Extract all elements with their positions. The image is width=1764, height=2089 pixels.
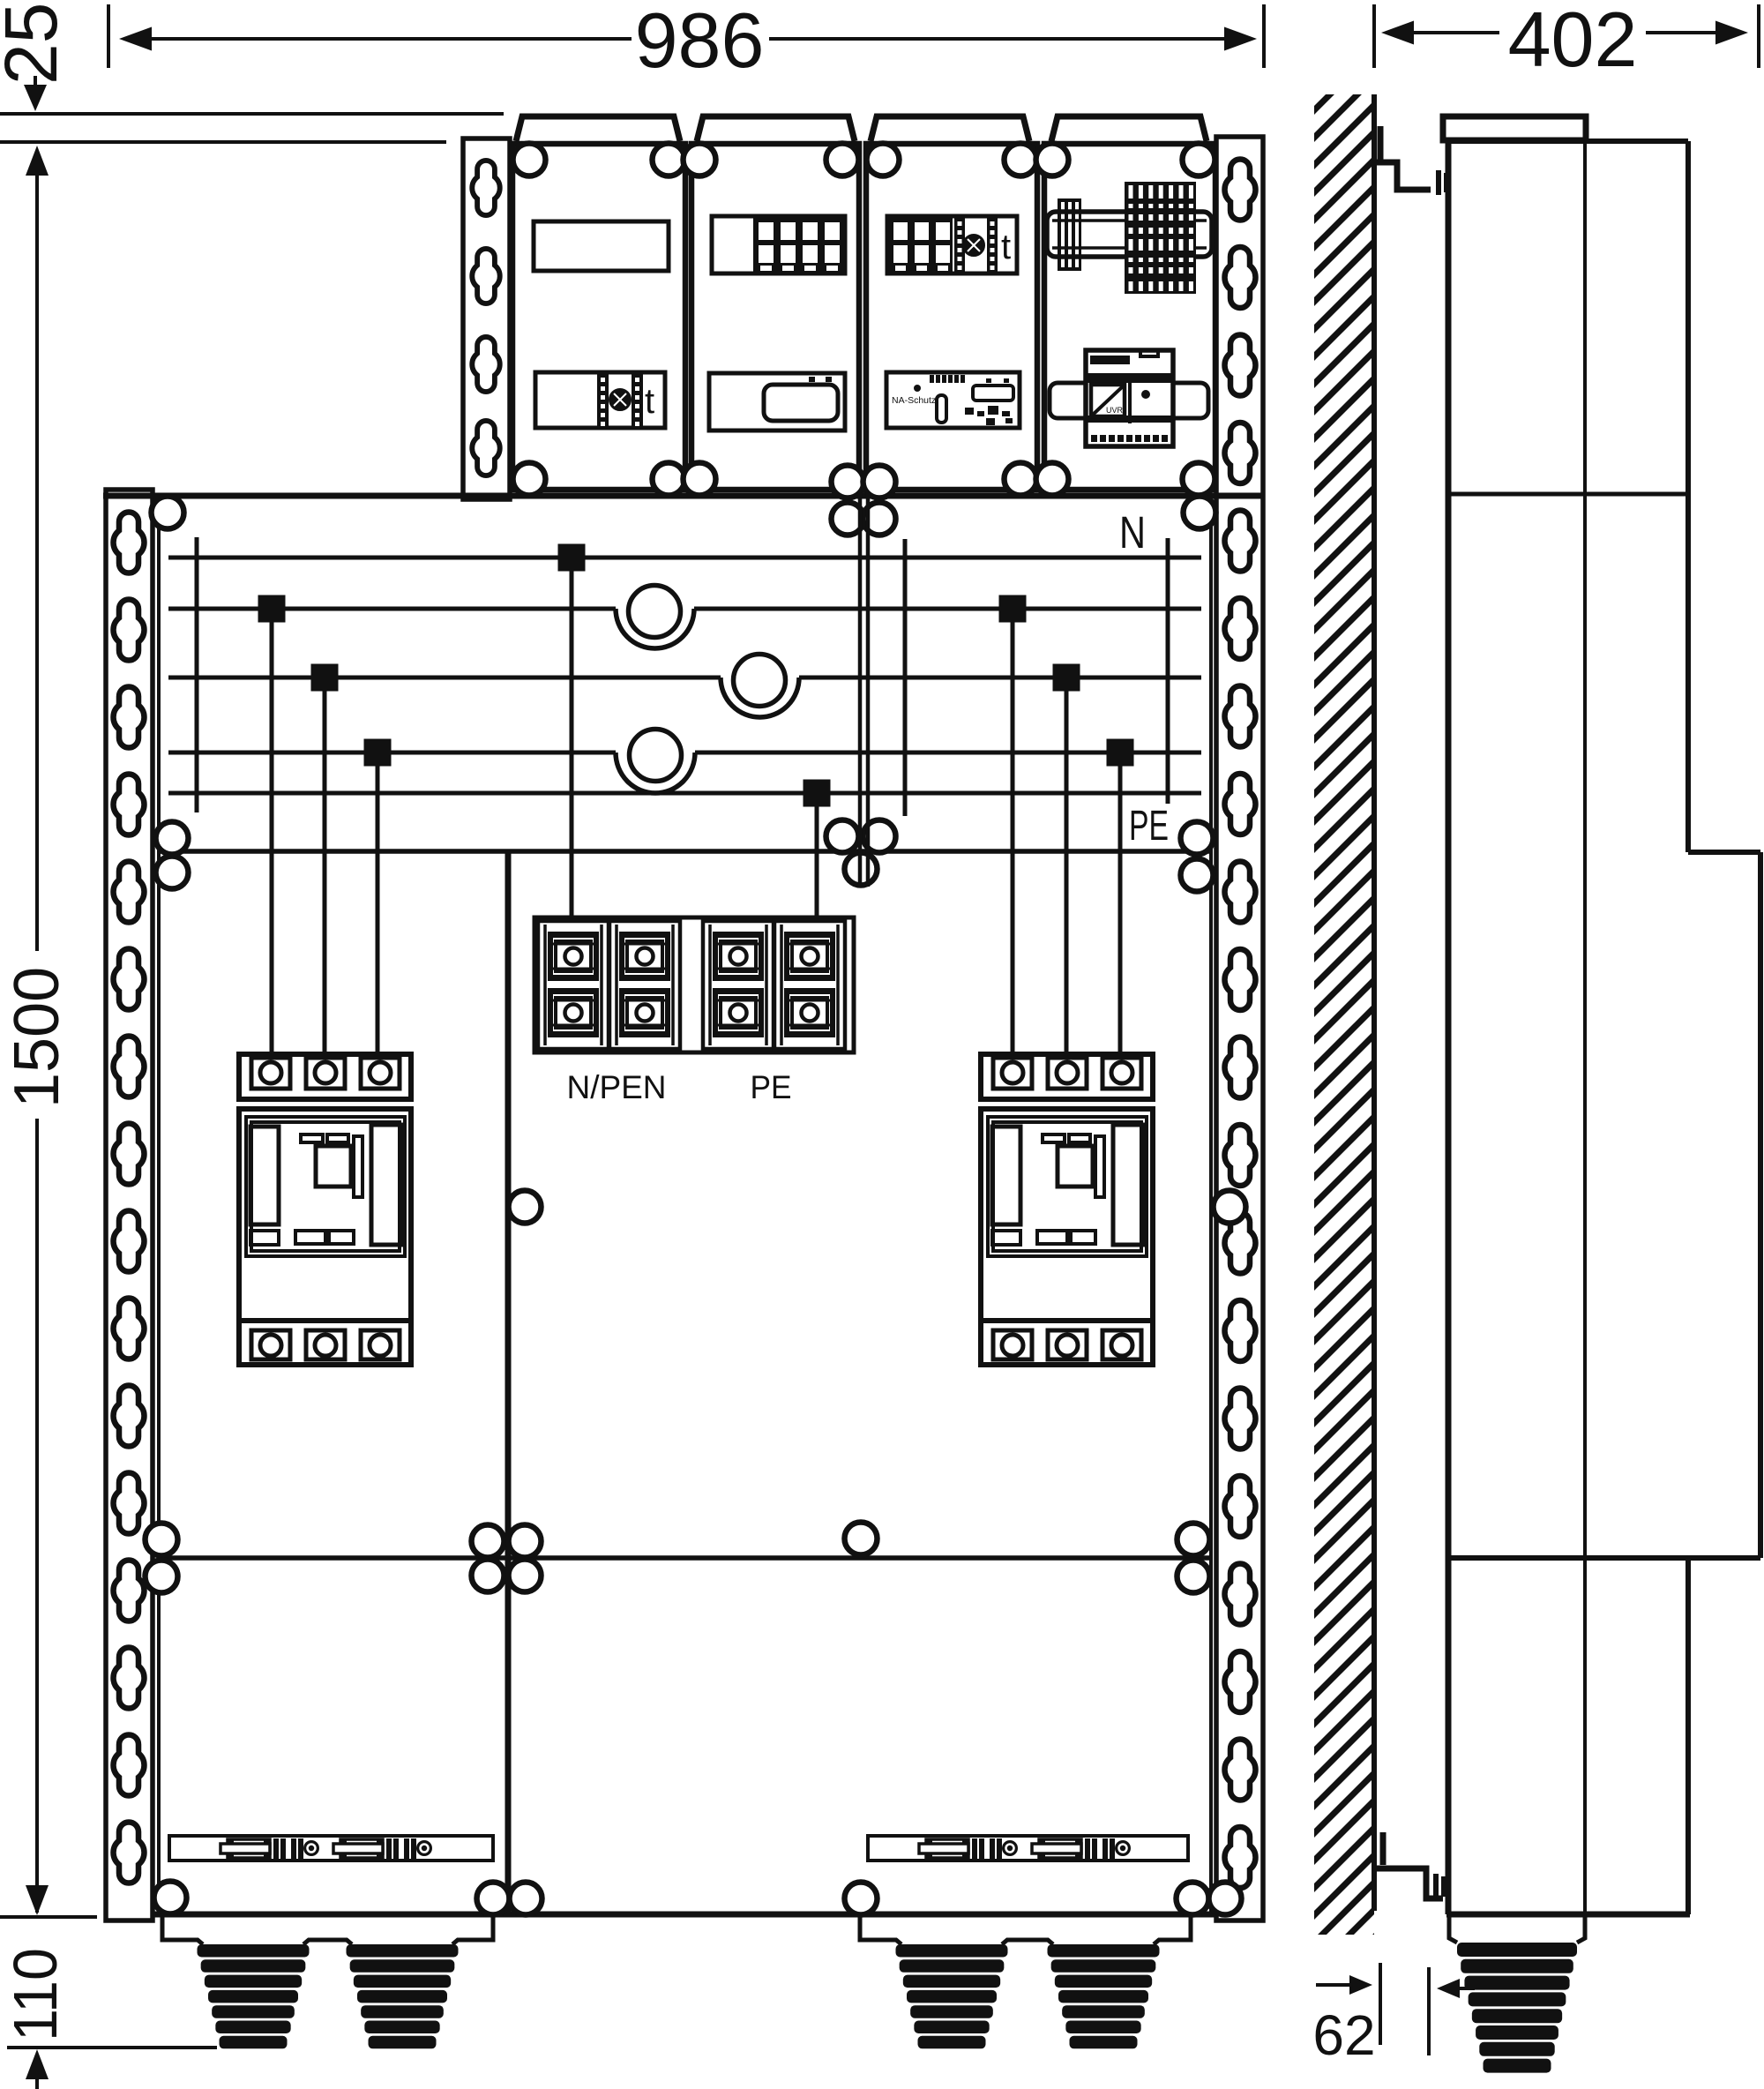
svg-text:t: t	[1001, 228, 1011, 266]
svg-text:PE: PE	[1129, 803, 1169, 850]
svg-text:25: 25	[0, 3, 72, 85]
svg-text:N/PEN: N/PEN	[567, 1069, 667, 1105]
svg-text:110: 110	[1, 1948, 70, 2041]
svg-text:PE: PE	[751, 1069, 792, 1105]
svg-text:986: 986	[635, 0, 765, 84]
svg-text:N: N	[1119, 507, 1146, 558]
svg-text:UVR: UVR	[1106, 406, 1124, 415]
svg-text:1500: 1500	[2, 967, 72, 1108]
svg-text:402: 402	[1508, 0, 1638, 83]
svg-text:62: 62	[1312, 2003, 1375, 2067]
svg-text:NA-Schutz: NA-Schutz	[892, 395, 936, 406]
svg-text:t: t	[645, 382, 654, 421]
